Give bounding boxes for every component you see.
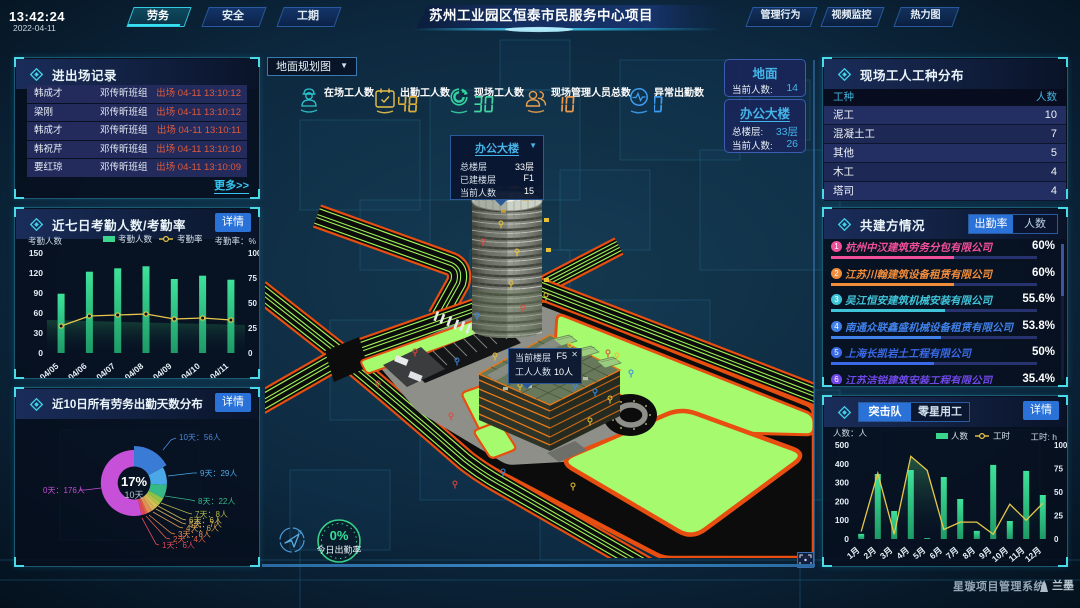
svg-text:50: 50 <box>1054 488 1063 497</box>
svg-text:8天：22人: 8天：22人 <box>198 497 235 506</box>
svg-text:7月: 7月 <box>944 545 961 561</box>
svg-text:17%: 17% <box>121 474 147 489</box>
svg-text:10天: 10天 <box>124 490 143 500</box>
svg-text:04/11: 04/11 <box>208 361 231 378</box>
svg-text:120: 120 <box>29 268 43 278</box>
svg-text:6月: 6月 <box>928 545 945 561</box>
svg-text:10月: 10月 <box>990 545 1010 564</box>
svg-text:考勤人数: 考勤人数 <box>28 236 63 246</box>
svg-text:0天：176人: 0天：176人 <box>43 486 85 495</box>
svg-text:考勤率: 考勤率 <box>177 234 203 244</box>
svg-text:人数: 人数 <box>951 431 969 441</box>
svg-text:04/09: 04/09 <box>151 361 174 378</box>
svg-text:0: 0 <box>248 349 253 358</box>
svg-text:人数：人: 人数：人 <box>833 428 868 438</box>
svg-text:04/05: 04/05 <box>38 361 61 378</box>
svg-text:75: 75 <box>248 274 257 283</box>
svg-text:0: 0 <box>1054 535 1059 544</box>
svg-text:考勤人数: 考勤人数 <box>118 234 153 244</box>
svg-text:8月: 8月 <box>961 545 978 561</box>
svg-text:考勤率：%: 考勤率：% <box>214 236 256 246</box>
svg-text:200: 200 <box>835 496 849 506</box>
svg-text:10天：56人: 10天：56人 <box>179 433 221 442</box>
svg-text:3月: 3月 <box>878 545 895 561</box>
svg-text:兰墨: 兰墨 <box>1052 578 1074 592</box>
svg-text:100: 100 <box>1054 441 1067 450</box>
svg-text:30: 30 <box>34 328 44 338</box>
svg-text:25: 25 <box>1054 512 1063 521</box>
svg-text:100: 100 <box>248 249 259 258</box>
svg-text:N: N <box>298 530 302 536</box>
svg-text:11月: 11月 <box>1007 545 1027 564</box>
svg-text:0: 0 <box>38 348 43 358</box>
svg-text:50: 50 <box>248 299 257 308</box>
svg-text:150: 150 <box>29 248 43 258</box>
svg-text:04/10: 04/10 <box>179 361 202 378</box>
svg-text:12月: 12月 <box>1023 545 1043 564</box>
svg-text:今日出勤率: 今日出勤率 <box>316 544 361 555</box>
svg-text:100: 100 <box>835 515 849 525</box>
svg-text:1天：6人: 1天：6人 <box>162 541 195 550</box>
svg-text:0: 0 <box>844 534 849 544</box>
svg-text:04/07: 04/07 <box>94 361 117 378</box>
svg-text:90: 90 <box>34 288 44 298</box>
svg-text:60: 60 <box>34 308 44 318</box>
svg-text:1月: 1月 <box>845 545 862 561</box>
svg-text:300: 300 <box>835 478 849 488</box>
svg-text:400: 400 <box>835 459 849 469</box>
svg-text:9天：29人: 9天：29人 <box>200 469 237 478</box>
svg-text:4月: 4月 <box>895 545 912 561</box>
svg-text:0%: 0% <box>330 528 349 543</box>
svg-text:04/08: 04/08 <box>123 361 146 378</box>
svg-text:工时: 工时 <box>993 431 1011 441</box>
svg-text:04/06: 04/06 <box>66 361 89 378</box>
svg-text:2月: 2月 <box>862 545 879 561</box>
svg-text:5月: 5月 <box>911 545 928 561</box>
svg-text:25: 25 <box>248 324 257 333</box>
svg-text:500: 500 <box>835 440 849 450</box>
svg-text:75: 75 <box>1054 465 1063 474</box>
